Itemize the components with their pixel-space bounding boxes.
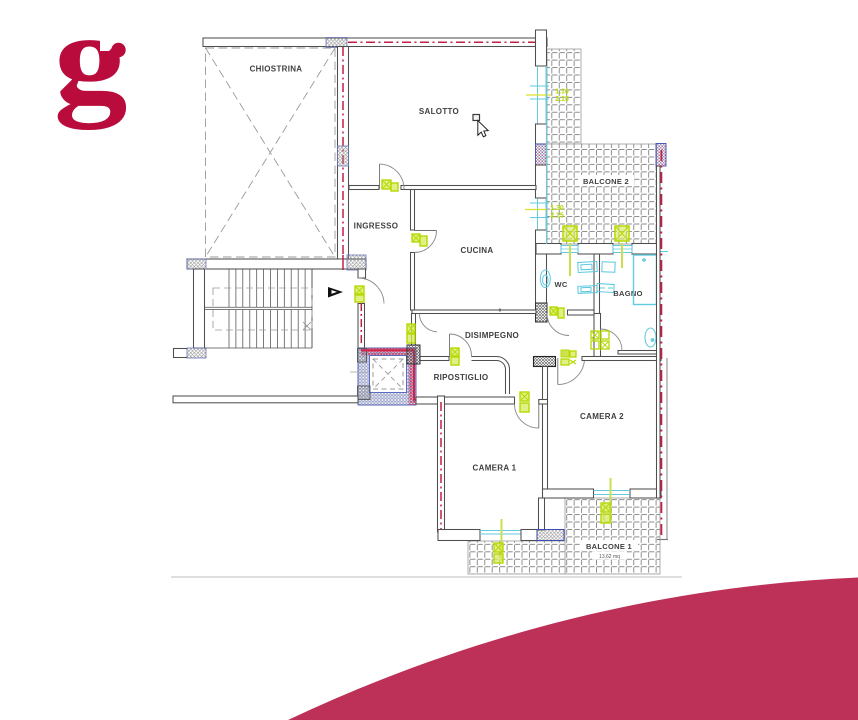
- svg-text:CUCINA: CUCINA: [461, 246, 494, 255]
- svg-text:CAMERA 1: CAMERA 1: [473, 464, 517, 473]
- svg-text:13,62 mq: 13,62 mq: [599, 554, 620, 560]
- svg-text:g: g: [54, 0, 128, 130]
- svg-text:DISIMPEGNO: DISIMPEGNO: [465, 331, 519, 340]
- svg-text:2.15: 2.15: [550, 213, 564, 220]
- svg-text:BALCONE 1: BALCONE 1: [586, 542, 632, 551]
- svg-text:1.30: 1.30: [550, 205, 564, 212]
- svg-text:SALOTTO: SALOTTO: [419, 107, 459, 116]
- svg-text:BALCONE 2: BALCONE 2: [583, 177, 629, 186]
- svg-text:CHIOSTRINA: CHIOSTRINA: [250, 65, 303, 74]
- svg-text:2.15: 2.15: [555, 96, 569, 103]
- svg-text:BAGNO: BAGNO: [613, 289, 642, 298]
- svg-text:WC: WC: [554, 280, 567, 289]
- svg-text:9: 9: [499, 308, 502, 313]
- svg-text:INGRESSO: INGRESSO: [354, 222, 399, 231]
- svg-text:1.10: 1.10: [555, 89, 569, 96]
- svg-text:CAMERA 2: CAMERA 2: [580, 412, 624, 421]
- svg-text:RIPOSTIGLIO: RIPOSTIGLIO: [434, 373, 489, 382]
